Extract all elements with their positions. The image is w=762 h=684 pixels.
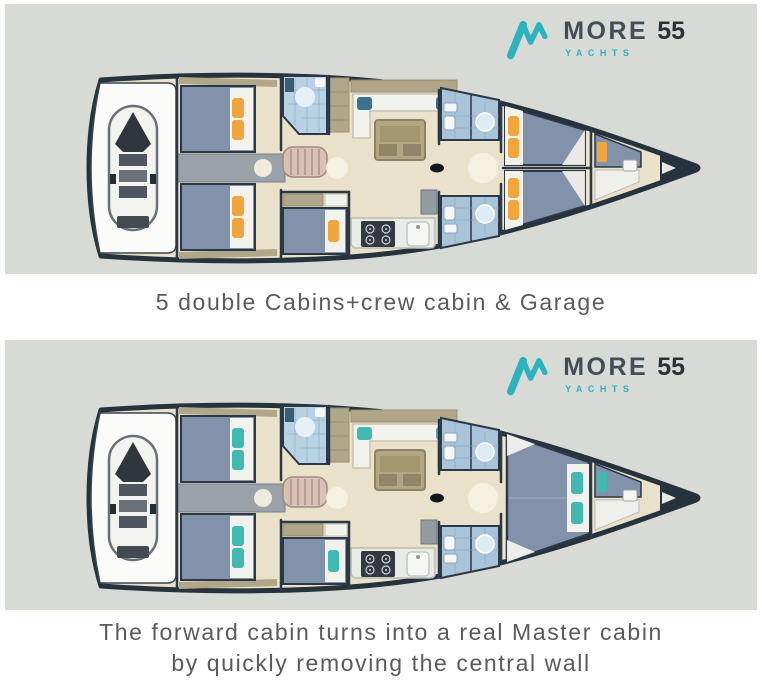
- bed-linen: [230, 186, 253, 248]
- sink: [444, 433, 457, 442]
- faucet: [416, 555, 420, 559]
- sink: [315, 78, 325, 87]
- bed-pillow: [328, 220, 339, 242]
- mast-base: [430, 494, 444, 503]
- stool: [403, 144, 421, 156]
- floorplan-five-cabins: [85, 70, 705, 266]
- brand-mark-icon: [504, 352, 554, 396]
- crew-pillow: [597, 142, 607, 162]
- floorplan-root: [89, 75, 698, 261]
- bed-pillow: [508, 116, 519, 136]
- brand-model: 55: [657, 353, 685, 382]
- bed-pillow: [571, 502, 583, 524]
- deck-hatch: [623, 160, 637, 171]
- bed-linen: [230, 516, 253, 578]
- wardrobe: [283, 524, 323, 536]
- caption-layout-b: The forward cabin turns into a real Mast…: [0, 617, 762, 679]
- bed-pillow: [232, 98, 244, 118]
- burner-center: [369, 239, 371, 241]
- bed-pillow: [232, 196, 244, 216]
- table-top: [380, 126, 420, 142]
- bath-fixture: [285, 408, 294, 422]
- bath-fixture: [285, 78, 294, 92]
- tender-handle: [150, 174, 156, 184]
- caption-line-2: by quickly removing the central wall: [171, 650, 590, 676]
- bed-pillow: [571, 472, 583, 494]
- brand-subtitle: YACHTS: [563, 384, 685, 394]
- bed-pillow: [328, 550, 339, 572]
- tender-handle: [110, 504, 116, 514]
- fridge: [421, 520, 437, 544]
- sink: [315, 408, 325, 417]
- stool: [379, 144, 397, 156]
- toilet: [444, 116, 455, 130]
- brand-subtitle: YACHTS: [563, 48, 685, 58]
- tender-transom: [117, 546, 149, 558]
- burner-center: [369, 569, 371, 571]
- yacht-layouts-page: MORE 55 YACHTS 5 double Cabins+crew cabi…: [0, 0, 762, 684]
- sink: [444, 554, 457, 563]
- shower: [476, 205, 494, 223]
- tender-seat: [119, 186, 147, 198]
- shower: [476, 113, 494, 131]
- stove: [361, 551, 395, 577]
- shelf: [325, 194, 347, 206]
- bed-pillow: [232, 450, 244, 470]
- brand-logo: MORE 55 YACHTS: [504, 352, 685, 396]
- wardrobe: [283, 194, 323, 206]
- layout-a-panel: MORE 55 YACHTS: [5, 4, 757, 274]
- toilet: [444, 536, 455, 550]
- shower: [295, 87, 315, 107]
- bed-pillow: [232, 120, 244, 140]
- sink: [444, 103, 457, 112]
- cabinet: [329, 78, 349, 132]
- stove: [361, 221, 395, 247]
- floorplan-root: [89, 405, 698, 591]
- brand-wordmark: MORE 55 YACHTS: [563, 353, 685, 394]
- shower: [476, 443, 494, 461]
- caption-line-1: The forward cabin turns into a real Mast…: [99, 619, 663, 645]
- caption-layout-a: 5 double Cabins+crew cabin & Garage: [0, 289, 762, 316]
- bed-linen: [230, 418, 253, 480]
- bed-pillow: [232, 548, 244, 568]
- bed-pillow: [232, 218, 244, 238]
- toilet: [444, 446, 455, 460]
- bed-pillow: [508, 178, 519, 198]
- shower: [476, 535, 494, 553]
- tender-transom: [117, 216, 149, 228]
- table-top: [380, 456, 420, 472]
- tender-seat: [119, 170, 147, 182]
- crew-pillow: [597, 472, 607, 492]
- bed-pillow: [232, 428, 244, 448]
- burner-center: [385, 558, 387, 560]
- burner-center: [385, 569, 387, 571]
- floorplan-master-cabin: [85, 400, 705, 596]
- tender-handle: [150, 504, 156, 514]
- stool: [403, 474, 421, 486]
- burner-center: [369, 558, 371, 560]
- brand-name: MORE: [563, 17, 648, 46]
- shower: [295, 417, 315, 437]
- shelf: [325, 524, 347, 536]
- tender-seat: [119, 516, 147, 528]
- toilet: [444, 206, 455, 220]
- sink: [444, 224, 457, 233]
- brand-model: 55: [657, 17, 685, 46]
- bed-pillow: [508, 138, 519, 158]
- burner-center: [385, 239, 387, 241]
- tender-seat: [119, 500, 147, 512]
- brand-wordmark: MORE 55 YACHTS: [563, 17, 685, 58]
- mast-base: [430, 164, 444, 173]
- sofa-cushion: [357, 97, 372, 110]
- layout-b-panel: MORE 55 YACHTS: [5, 340, 757, 610]
- stool: [379, 474, 397, 486]
- tender-handle: [110, 174, 116, 184]
- tender-seat: [119, 484, 147, 496]
- cabinet: [329, 408, 349, 462]
- sofa-cushion: [357, 427, 372, 440]
- bed-pillow: [508, 200, 519, 220]
- bed-pillow: [232, 526, 244, 546]
- fridge: [421, 190, 437, 214]
- faucet: [416, 225, 420, 229]
- bed-linen: [230, 88, 253, 150]
- brand-name: MORE: [563, 353, 648, 382]
- deck-hatch: [623, 490, 637, 501]
- burner-center: [369, 228, 371, 230]
- brand-mark-icon: [504, 16, 554, 60]
- brand-logo: MORE 55 YACHTS: [504, 16, 685, 60]
- tender-seat: [119, 154, 147, 166]
- burner-center: [385, 228, 387, 230]
